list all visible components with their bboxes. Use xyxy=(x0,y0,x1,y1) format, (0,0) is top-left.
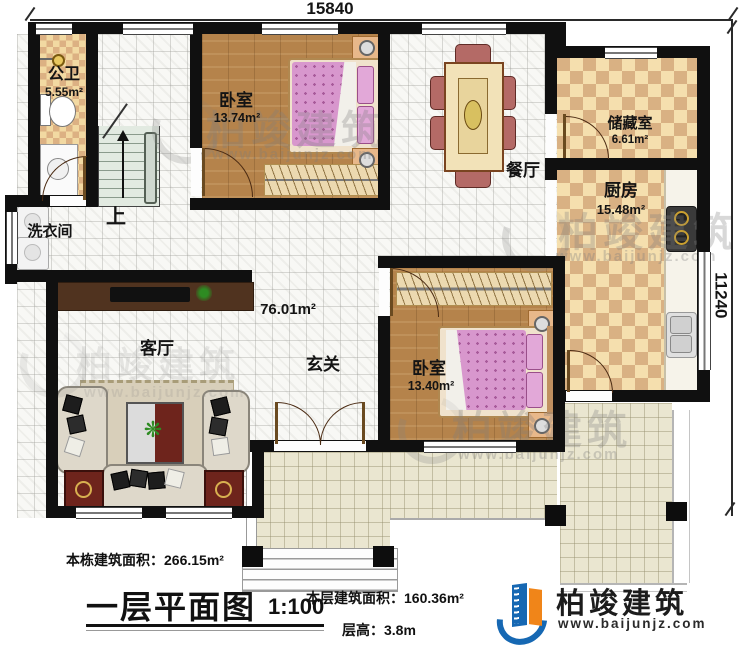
bedroom2-door-opening xyxy=(379,268,389,316)
patio-right-edge xyxy=(672,410,690,583)
living-label: 客厅 xyxy=(130,340,184,359)
bedroom2-door-leaf xyxy=(390,268,393,316)
window-storage xyxy=(605,47,657,59)
cushion xyxy=(147,471,165,489)
plant-icon: ❋ xyxy=(141,418,165,442)
dimension-top-line xyxy=(30,19,733,21)
bedroom1-door-opening xyxy=(191,148,201,196)
window-kitchen xyxy=(698,252,711,370)
laundry-label: 洗衣间 xyxy=(16,224,84,241)
storage-door-opening xyxy=(546,114,556,158)
cushion xyxy=(209,417,229,437)
side-table-ornament-icon xyxy=(75,481,92,498)
wall-dining-east-a xyxy=(545,34,557,114)
floor-area-label: 本层建筑面积： xyxy=(306,590,404,606)
entry-door-leaf xyxy=(275,402,278,444)
building-area: 本栋建筑面积：266.15m² xyxy=(66,550,224,570)
watermark-url: www.baijunjz.com xyxy=(84,384,245,401)
wall-left-upper xyxy=(28,22,40,207)
cushion xyxy=(129,469,148,488)
floor-plan: 15840 11240 xyxy=(0,0,750,646)
plan-title: 一层平面图 xyxy=(86,582,256,628)
floor-height-label: 层高： xyxy=(342,622,384,638)
dimension-tick xyxy=(728,7,739,21)
logo-building-windows-icon xyxy=(514,587,519,624)
toilet-bowl-icon xyxy=(49,96,76,127)
title-underline xyxy=(86,624,324,627)
patio-column xyxy=(545,505,566,526)
stair-arrow-head xyxy=(117,130,129,141)
wall-bedroom2-top xyxy=(378,256,565,268)
wall-storage-south xyxy=(557,158,710,170)
bathroom-area: 5.55m² xyxy=(34,86,94,99)
logo-building-orange-icon xyxy=(529,588,542,626)
window xyxy=(422,23,506,35)
kitchen-area: 15.48m² xyxy=(588,203,654,217)
window-living xyxy=(76,507,142,519)
lamp-icon xyxy=(359,40,375,56)
logo: 柏竣建筑 www.baijunjz.com xyxy=(492,580,748,640)
hall-area: 76.01m² xyxy=(252,302,324,319)
sink-basin-icon xyxy=(670,316,692,334)
stair-arrow-line xyxy=(122,140,124,198)
wall-bathroom-east xyxy=(86,34,98,207)
building-area-value: 266.15m² xyxy=(164,552,224,568)
pillow xyxy=(526,334,543,370)
dimension-tick xyxy=(725,502,736,516)
window-living xyxy=(166,507,232,519)
dining-label: 餐厅 xyxy=(496,162,550,181)
bathroom-door-leaf xyxy=(83,156,86,200)
side-table-ornament-icon xyxy=(215,481,232,498)
logo-building-blue-icon xyxy=(512,583,527,627)
dimension-top: 15840 xyxy=(290,0,370,19)
kitchen-patio-door-leaf xyxy=(567,350,570,392)
wardrobe xyxy=(264,164,380,196)
plant-icon xyxy=(196,285,212,301)
logo-icon xyxy=(496,582,554,638)
watermark-url: www.baijunjz.com xyxy=(556,248,717,265)
floor-height: 层高：3.8m xyxy=(342,620,416,640)
floor-area: 本层建筑面积：160.36m² xyxy=(306,588,464,608)
sink-basin-icon xyxy=(670,335,692,353)
wall-laundry-living xyxy=(5,270,252,282)
cushion xyxy=(211,437,230,456)
wall-bedroom2-west-b xyxy=(378,316,390,452)
bedroom1-label: 卧室 xyxy=(210,92,262,111)
tv-icon xyxy=(110,287,190,302)
bedroom1-area: 13.74m² xyxy=(206,112,268,126)
porch xyxy=(256,452,390,548)
floor-height-value: 3.8m xyxy=(384,622,416,638)
floor-area-value: 160.36m² xyxy=(404,590,464,606)
porch-column xyxy=(242,546,263,567)
entry-door-leaf xyxy=(362,402,365,444)
window xyxy=(123,23,193,35)
kitchen-doorway xyxy=(546,180,556,256)
dimension-right-line xyxy=(731,20,733,516)
foyer-label: 玄关 xyxy=(296,356,350,375)
storage-label: 储藏室 xyxy=(596,116,664,133)
storage-area: 6.61m² xyxy=(602,134,658,147)
wall-bedroom2-right xyxy=(553,256,565,452)
bathroom-label: 公卫 xyxy=(36,66,92,84)
bedroom2-label: 卧室 xyxy=(402,360,456,379)
porch-column xyxy=(373,546,394,567)
window xyxy=(262,23,338,35)
wall-bedroom1-west-a xyxy=(190,34,202,148)
kitchen-label: 厨房 xyxy=(594,182,648,201)
wall-bedroom1-south xyxy=(190,198,390,210)
wall-living-left xyxy=(46,272,58,518)
building-area-label: 本栋建筑面积： xyxy=(66,552,164,568)
logo-url: www.baijunjz.com xyxy=(558,616,707,631)
wall-bedroom1-east xyxy=(378,34,390,210)
stairs-up-label: 上 xyxy=(102,206,130,228)
patio-column xyxy=(666,502,687,521)
title-underline-thin xyxy=(86,630,324,631)
window-bedroom2 xyxy=(424,441,516,453)
washing-machine-door-icon xyxy=(24,244,41,261)
cushion xyxy=(66,414,86,434)
bedroom1-door-leaf xyxy=(202,148,205,196)
dimension-right: 11240 xyxy=(711,255,730,335)
storage-door-leaf xyxy=(563,114,566,158)
window xyxy=(36,23,72,35)
cushion xyxy=(110,470,130,490)
table-bowl-icon xyxy=(464,100,482,130)
bedroom2-area: 13.40m² xyxy=(398,380,464,394)
